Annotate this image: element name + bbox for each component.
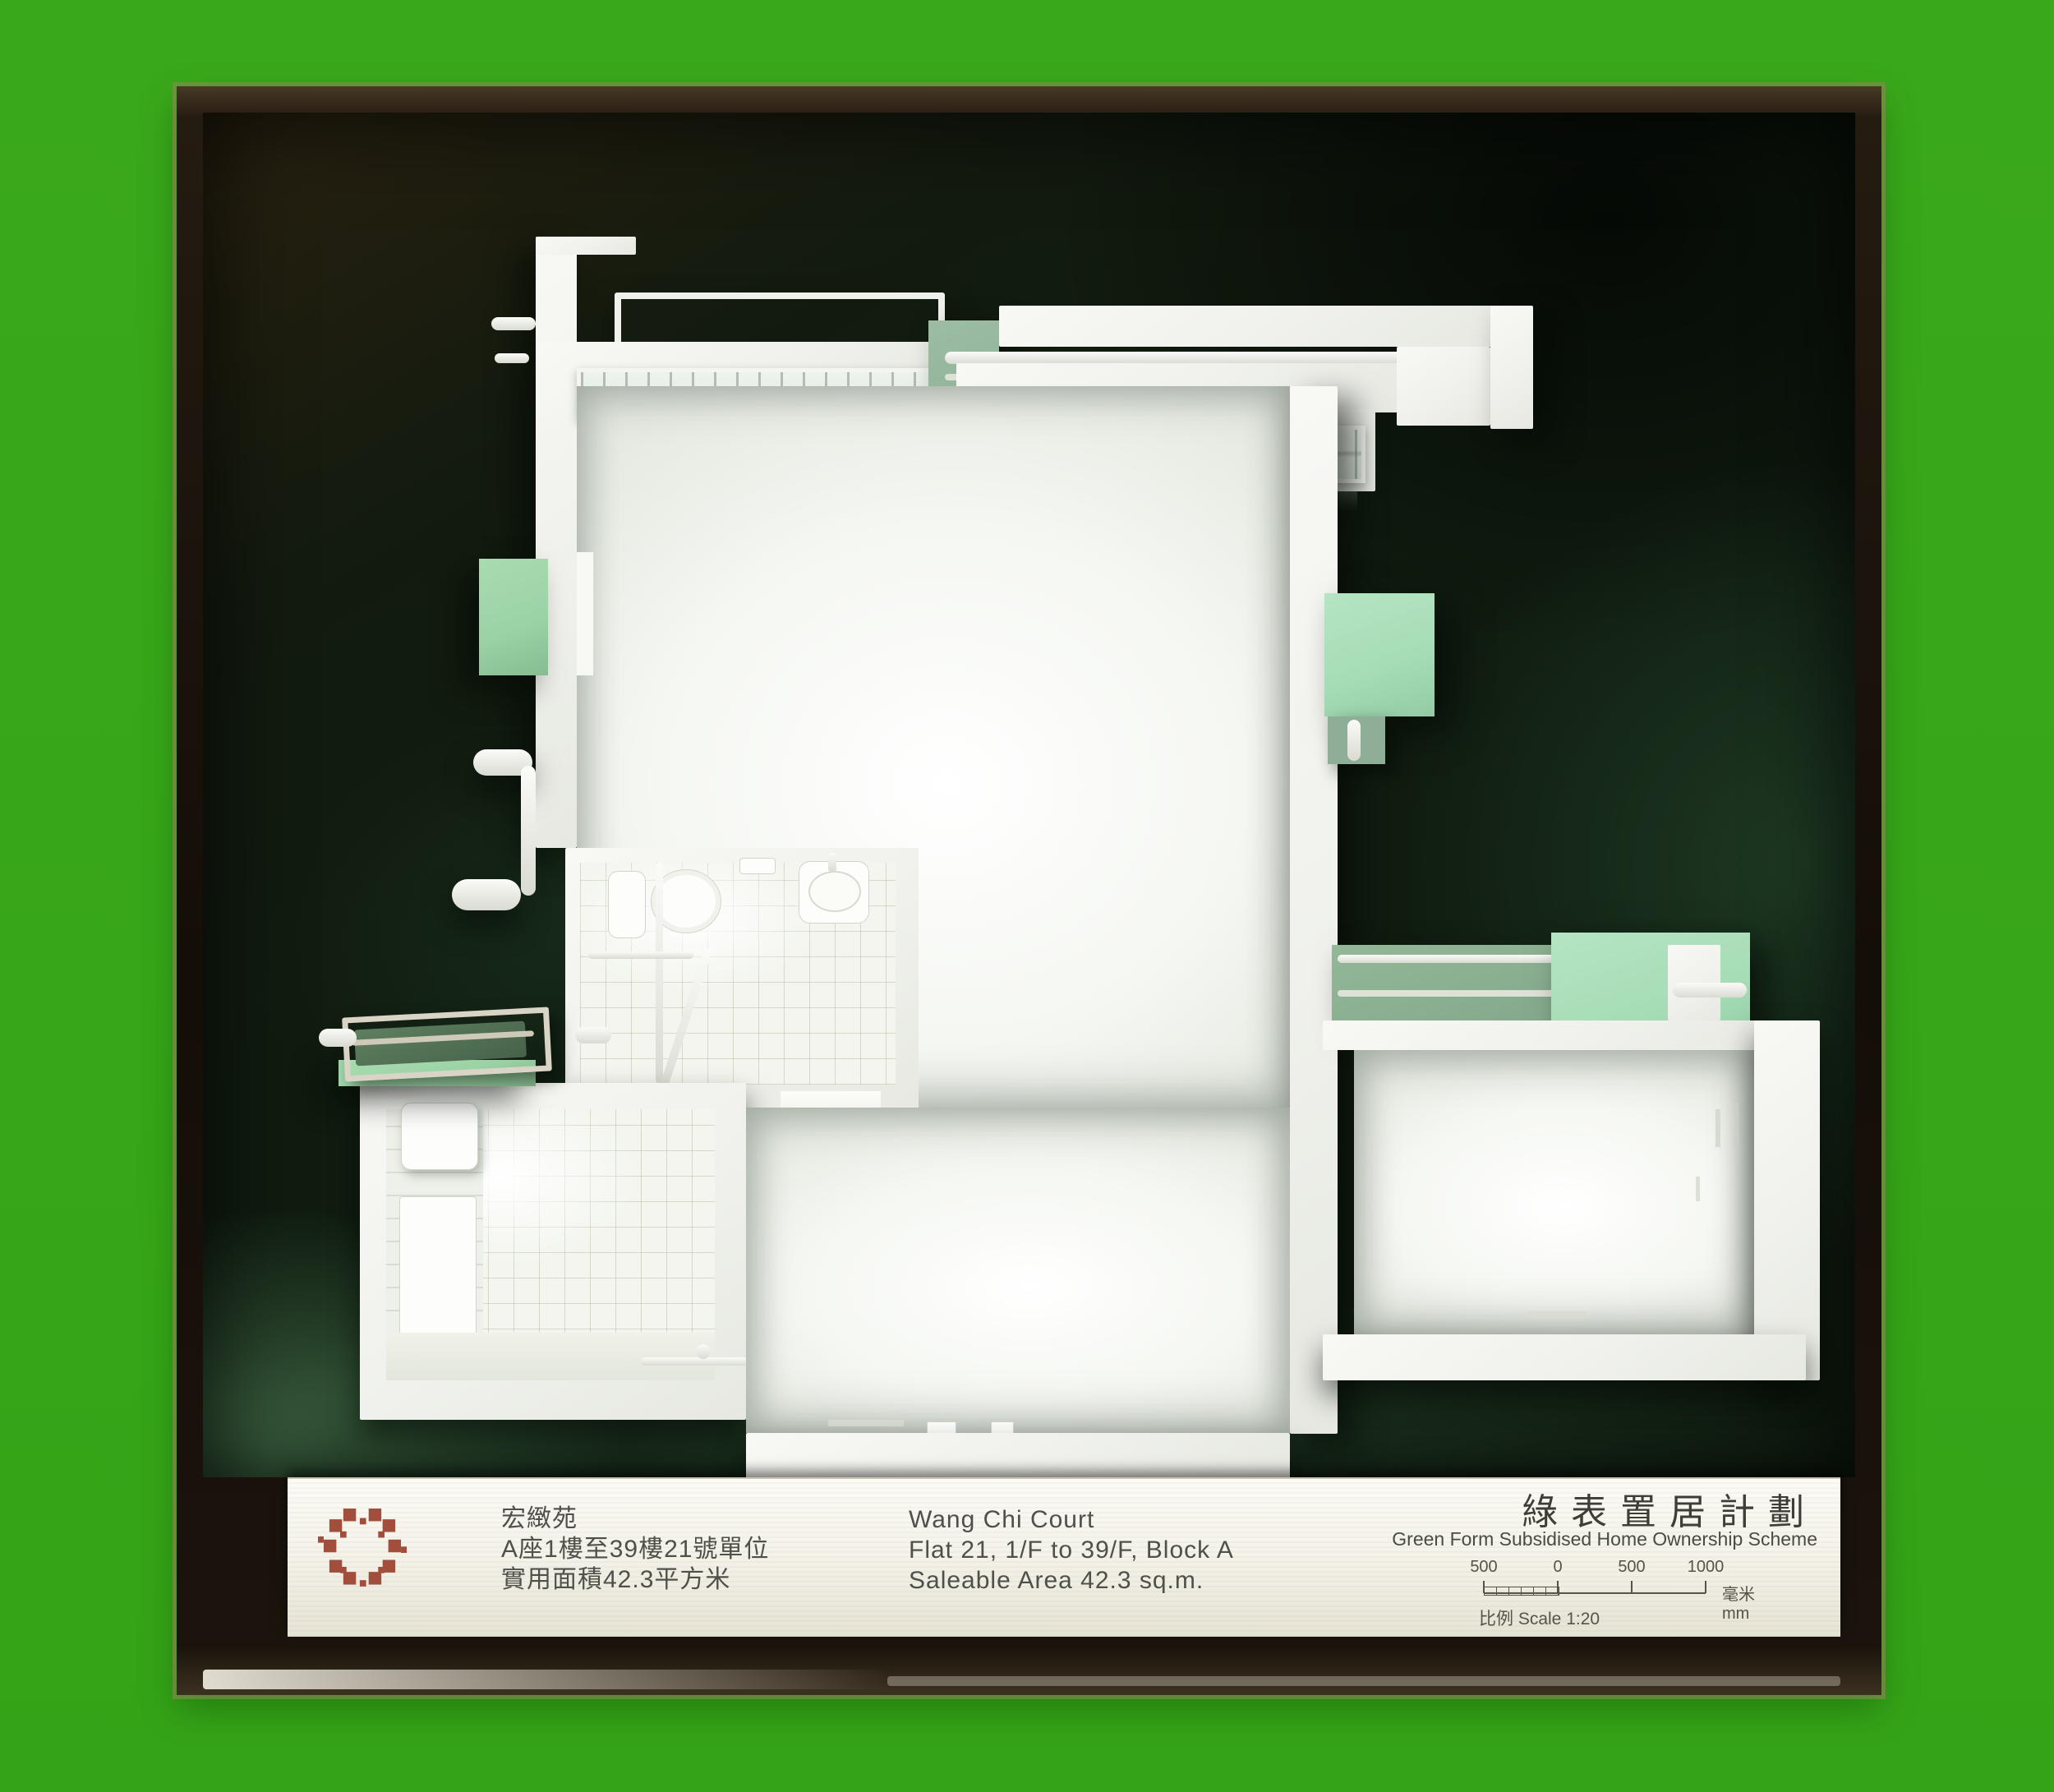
bedroom-doorframe-mark — [1734, 1103, 1739, 1147]
basin-bowl — [808, 871, 861, 912]
housing-authority-logo-icon — [317, 1509, 408, 1597]
water-heater — [401, 1103, 478, 1170]
top-right-corner-wall — [1397, 347, 1490, 426]
bedroom-top-wall — [1323, 1020, 1806, 1050]
photo-scene: 宏緻苑 A座1樓至39樓21號單位 實用面積42.3平方米 Wang Chi C… — [0, 0, 2054, 1792]
bedroom-wall-mark — [1696, 1177, 1700, 1201]
bedroom-bottom-wall — [1323, 1334, 1806, 1380]
top-railing-bar-right — [945, 352, 1403, 364]
right-exterior-wall — [1290, 386, 1338, 1434]
scale-bar: 500 0 500 1000 毫米mm 比例 Scale 1:20 — [1476, 1558, 1771, 1627]
balcony-pipe-left — [319, 1029, 357, 1047]
balcony-pipe-right — [575, 1027, 611, 1043]
bottom-wall-middle — [746, 1433, 1290, 1479]
kitchen-floor-pipe — [641, 1357, 748, 1366]
scale-label-500R: 500 — [1618, 1558, 1645, 1577]
kitchen-floor — [386, 1333, 715, 1380]
unit-line-zh: A座1樓至39樓21號單位 — [501, 1534, 769, 1564]
area-line-en: Saleable Area 42.3 sq.m. — [909, 1565, 1234, 1596]
area-line-zh: 實用面積42.3平方米 — [501, 1564, 769, 1595]
left-window-green-panel — [479, 559, 548, 675]
scale-label-500L: 500 — [1470, 1558, 1497, 1577]
scale-bar-subdivisions — [1484, 1587, 1559, 1596]
scheme-title-zh: 綠表置居計劃 — [1522, 1482, 1817, 1535]
kitchen-cabinet — [399, 1196, 477, 1339]
estate-name-en: Wang Chi Court — [909, 1504, 1234, 1535]
dining-room-floor — [746, 1108, 1290, 1433]
top-wall-far-right — [999, 306, 1505, 347]
scheme-title-en: Green Form Subsidised Home Ownership Sch… — [1392, 1528, 1817, 1550]
bedroom-doorframe-mark — [1716, 1109, 1720, 1147]
top-right-return-wall — [1490, 306, 1533, 429]
basin-faucet — [828, 853, 836, 873]
case-bottom-highlight-thin — [887, 1676, 1840, 1686]
plaque-chinese-block: 宏緻苑 A座1樓至39樓21號單位 實用面積42.3平方米 — [501, 1504, 769, 1595]
model-left-wall-cap — [536, 237, 636, 255]
bedroom-right-wall — [1754, 1020, 1820, 1380]
model-left-exterior-wall — [536, 237, 577, 848]
bay-pipe — [1673, 983, 1747, 997]
scale-label-0: 0 — [1553, 1558, 1562, 1577]
bedroom-floor — [1354, 1050, 1754, 1334]
kitchen-pipe-valve — [697, 1344, 710, 1359]
interior-wall-pilaster — [577, 552, 594, 675]
ac-drain-pipe — [1347, 720, 1361, 761]
scale-ratio-label: 比例 Scale 1:20 — [1479, 1605, 1600, 1630]
grab-bar — [588, 951, 693, 959]
exterior-round-pipe — [452, 879, 521, 910]
estate-name-zh: 宏緻苑 — [501, 1504, 769, 1534]
scale-tick — [1631, 1581, 1633, 1593]
bathroom-shelf — [739, 858, 776, 874]
scale-label-1000: 1000 — [1688, 1558, 1725, 1577]
case-bottom-highlight — [203, 1670, 893, 1689]
shower-riser-pipe — [656, 863, 663, 1083]
exterior-vertical-pipe — [521, 766, 536, 896]
door-floor-track — [828, 1420, 904, 1426]
scale-unit-label: 毫米mm — [1722, 1581, 1771, 1624]
toilet-cistern — [608, 871, 646, 938]
scale-tick — [1705, 1581, 1706, 1593]
unit-line-en: Flat 21, 1/F to 39/F, Block A — [909, 1535, 1234, 1565]
bedroom-floor-track — [1528, 1311, 1587, 1318]
ac-platform-green-panel — [1324, 593, 1435, 716]
plaque-english-block: Wang Chi Court Flat 21, 1/F to 39/F, Blo… — [909, 1504, 1234, 1596]
exterior-pipe-stub — [491, 317, 536, 330]
exterior-pipe-stub — [495, 353, 529, 363]
